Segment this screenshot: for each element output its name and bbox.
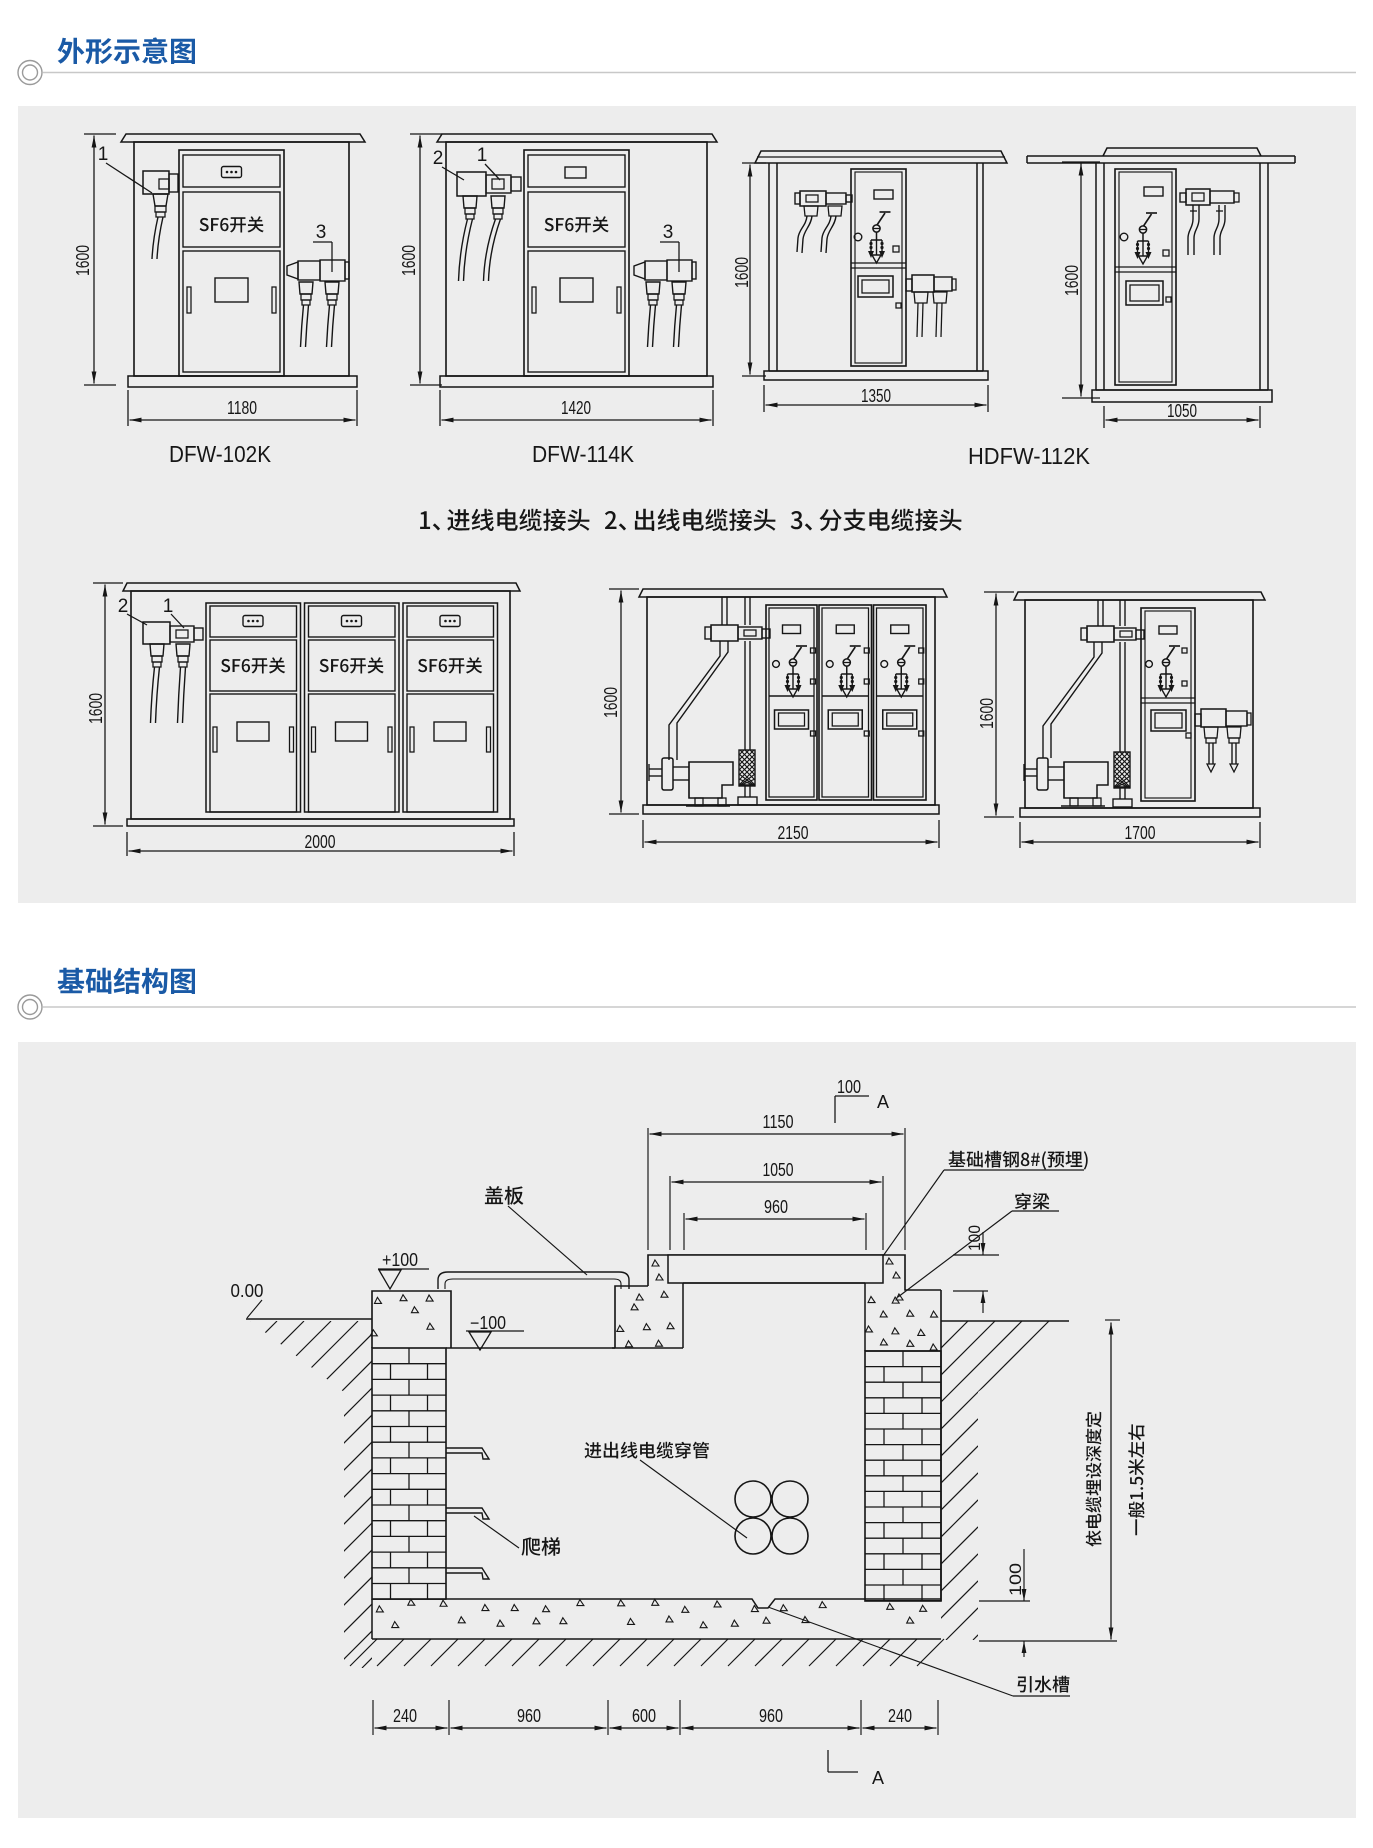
svg-text:1150: 1150 xyxy=(763,1112,794,1132)
svg-text:1600: 1600 xyxy=(399,245,419,276)
svg-text:1600: 1600 xyxy=(1062,265,1082,296)
svg-text:100: 100 xyxy=(1006,1563,1025,1596)
svg-text:1: 1 xyxy=(477,145,488,166)
svg-text:960: 960 xyxy=(517,1706,541,1726)
svg-text:1600: 1600 xyxy=(977,698,997,729)
svg-text:A: A xyxy=(877,1092,889,1112)
svg-text:DFW-102K: DFW-102K xyxy=(169,441,272,467)
svg-text:1700: 1700 xyxy=(1125,823,1156,843)
svg-text:960: 960 xyxy=(759,1706,783,1726)
svg-text:2150: 2150 xyxy=(778,823,809,843)
svg-text:3: 3 xyxy=(663,222,674,243)
svg-text:3: 3 xyxy=(316,222,327,243)
svg-text:100: 100 xyxy=(837,1077,861,1097)
svg-text:−100: −100 xyxy=(470,1313,506,1333)
svg-text:2: 2 xyxy=(118,596,129,617)
svg-text:1420: 1420 xyxy=(561,398,591,418)
svg-text:0.00: 0.00 xyxy=(231,1281,264,1301)
svg-text:1600: 1600 xyxy=(732,257,752,288)
svg-text:240: 240 xyxy=(888,1706,912,1726)
svg-text:1180: 1180 xyxy=(227,398,257,418)
svg-text:+100: +100 xyxy=(382,1250,418,1270)
svg-text:2: 2 xyxy=(433,148,444,169)
svg-text:1: 1 xyxy=(98,144,109,165)
svg-text:100: 100 xyxy=(965,1225,984,1251)
svg-text:600: 600 xyxy=(632,1706,656,1726)
svg-text:960: 960 xyxy=(764,1197,788,1217)
svg-text:A: A xyxy=(872,1768,884,1788)
svg-text:1350: 1350 xyxy=(861,386,891,406)
svg-text:1600: 1600 xyxy=(73,245,93,276)
svg-text:1600: 1600 xyxy=(601,687,621,718)
svg-text:HDFW-112K: HDFW-112K xyxy=(968,443,1091,469)
svg-text:1600: 1600 xyxy=(86,693,106,724)
svg-text:2000: 2000 xyxy=(305,832,336,852)
svg-text:DFW-114K: DFW-114K xyxy=(532,441,635,467)
svg-text:1050: 1050 xyxy=(1167,401,1197,421)
svg-text:1050: 1050 xyxy=(763,1160,794,1180)
svg-text:240: 240 xyxy=(393,1706,417,1726)
